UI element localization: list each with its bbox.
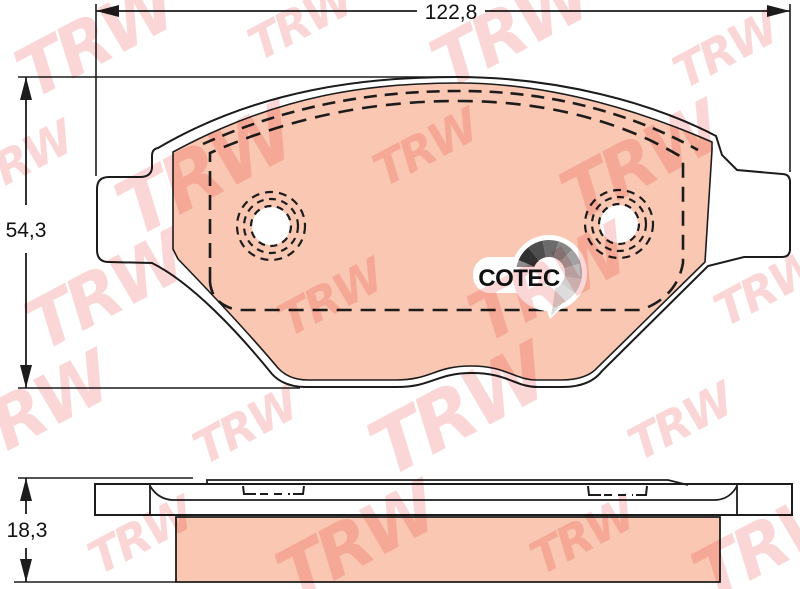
pad-side-view <box>95 480 792 582</box>
pad-top-view: COTEC <box>97 77 790 387</box>
brake-pad-drawing: COTEC 122,8 <box>0 0 800 589</box>
hole-right-bore <box>600 205 638 243</box>
width-dimension-label: 122,8 <box>425 1 478 24</box>
height-arrow-top <box>20 77 32 100</box>
technical-drawing-canvas: COTEC 122,8 <box>0 0 800 589</box>
side-friction-material <box>176 517 720 582</box>
thickness-arrow-bottom <box>20 559 32 582</box>
hole-left-bore <box>252 207 290 245</box>
thickness-dimension-label: 18,3 <box>7 519 48 542</box>
width-arrow-left <box>96 5 119 17</box>
width-arrow-right <box>767 5 790 17</box>
height-dimension-label: 54,3 <box>6 219 47 242</box>
height-arrow-bottom <box>20 365 32 388</box>
cotec-logo-text: COTEC <box>478 265 560 292</box>
thickness-arrow-top <box>20 478 32 501</box>
